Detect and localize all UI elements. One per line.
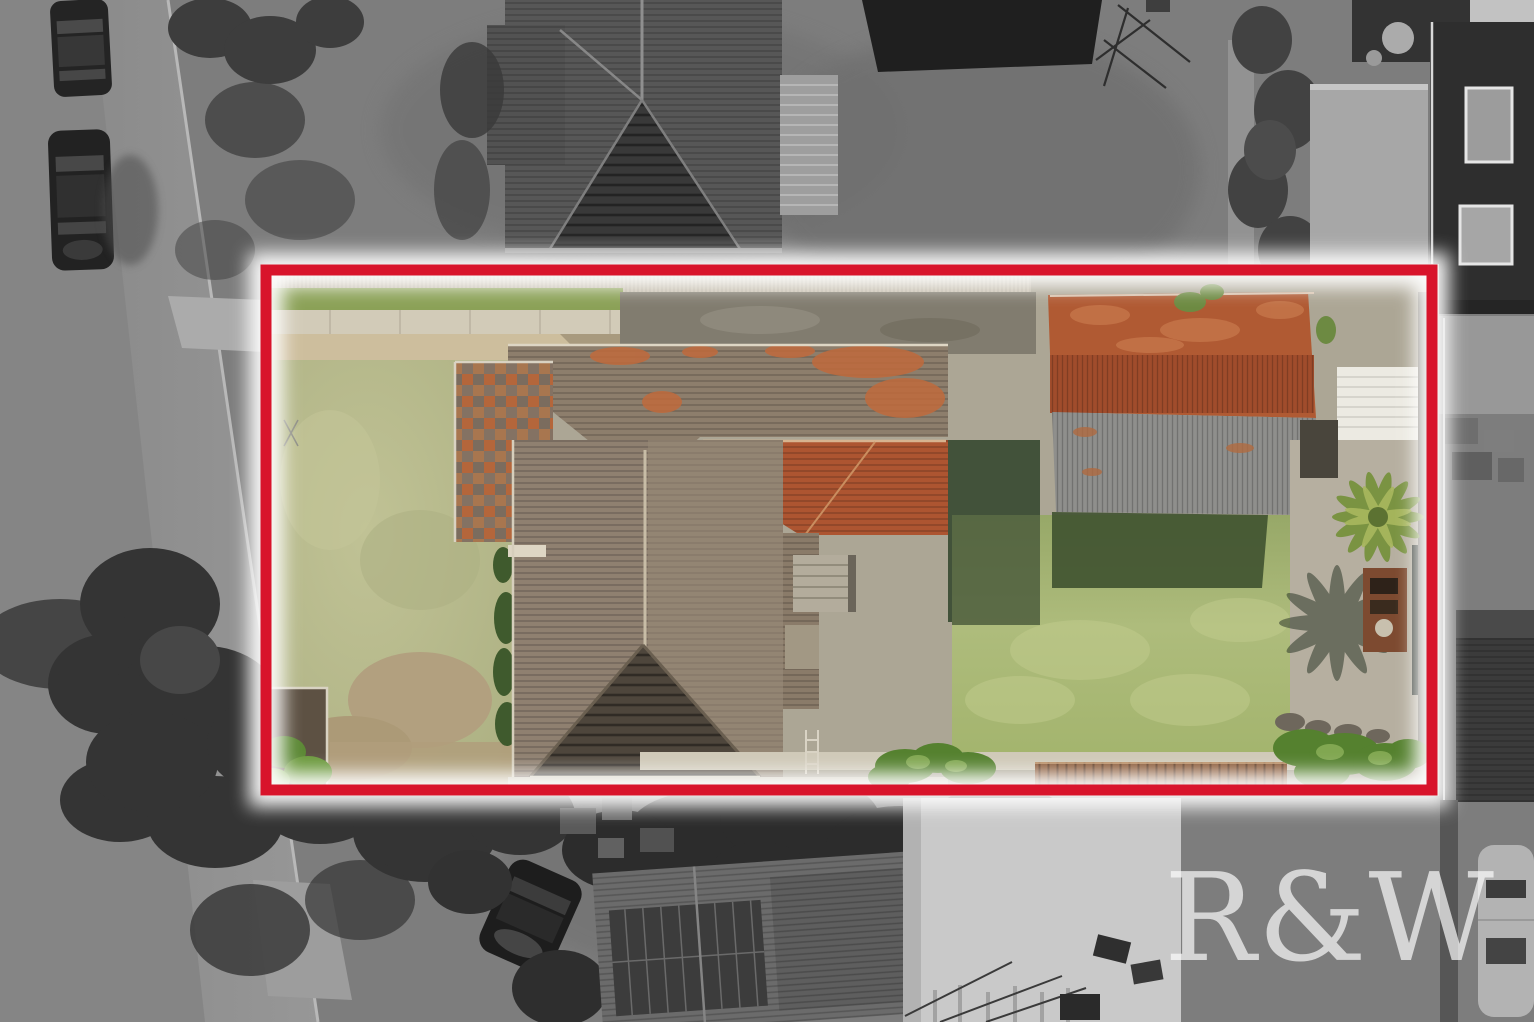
- parked-car-1: [50, 0, 113, 97]
- house-shadow-on-lawn: [952, 515, 1040, 625]
- aerial-photo-canvas: R&W: [0, 0, 1534, 1022]
- shed-ridge: [1310, 84, 1428, 90]
- garage-shadow-on-lawn: [1052, 512, 1268, 588]
- garage: [1048, 292, 1316, 515]
- property-inside-colour: [254, 264, 1439, 796]
- shade-sail: [862, 0, 1102, 72]
- car-shadow: [102, 155, 158, 265]
- window: [1460, 206, 1512, 264]
- footpath: [261, 310, 633, 336]
- concrete-stain: [700, 306, 820, 334]
- window: [1466, 88, 1512, 162]
- side-tree: [440, 42, 504, 138]
- brick-bbq: [1363, 568, 1407, 652]
- concrete-stain: [880, 318, 980, 342]
- white-shed-south: [903, 798, 1181, 1022]
- white-panel-stack: [1337, 367, 1419, 440]
- dark-doorway: [1300, 420, 1338, 478]
- solar-panels: [609, 900, 768, 1016]
- gray-shed-northeast: [1310, 84, 1428, 266]
- water-tank-small: [1366, 50, 1382, 66]
- grass-strip-top: [261, 288, 623, 312]
- neighbor-roof-south: [592, 852, 915, 1022]
- eave-line: [505, 248, 782, 253]
- water-tank: [1382, 22, 1414, 54]
- aerial-photo: R&W: [0, 0, 1534, 1022]
- porch: [785, 625, 819, 669]
- tree-over-car: [428, 850, 512, 914]
- agency-watermark: R&W: [1164, 847, 1496, 989]
- dark-shed-east: [1456, 610, 1534, 802]
- lawn-highlight: [280, 410, 380, 550]
- side-tree: [434, 140, 490, 240]
- rear-steps: [793, 555, 856, 612]
